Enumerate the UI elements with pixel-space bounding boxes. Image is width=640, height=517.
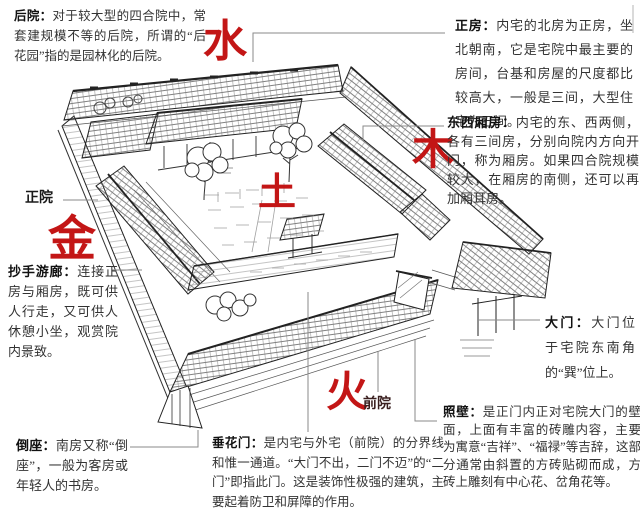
- annotation-back-yard: 后院：对于较大型的四合院中，常套建规模不等的后院，所谓的“后花园”指的是园林化的…: [14, 6, 206, 66]
- annotation-side-wings: 东西厢房：内宅的东、西两侧，各有三间房，分别向院内方向开门，称为厢房。如果四合院…: [447, 113, 639, 208]
- annotation-term: 东西厢房：: [447, 115, 516, 130]
- annotation-term: 正房：: [455, 18, 496, 33]
- annotation-term: 后院：: [14, 9, 52, 23]
- annotation-south-rooms: 倒座：南房又称“倒座”，一般为客房或年轻人的书房。: [16, 436, 128, 496]
- label-front-courtyard: 前院: [363, 398, 391, 412]
- annotation-term: 抄手游廊：: [8, 264, 77, 279]
- annotation-festoon-gate: 垂花门：是内宅与外宅（前院）的分界线和惟一通道。“大门不出，二门不迈”的“二门”…: [212, 434, 444, 512]
- element-metal-character: 金: [48, 216, 96, 264]
- label-main-courtyard: 正院: [25, 192, 53, 206]
- gate-house: [428, 242, 551, 356]
- annotation-term: 垂花门：: [212, 436, 264, 450]
- element-fire-character: 火: [326, 372, 368, 414]
- leader-daozuo: [130, 430, 198, 447]
- annotation-corridor: 抄手游廊：连接正房与厢房，既可供人行走，又可供人休憩小坐，观赏院内景致。: [8, 262, 118, 362]
- annotation-main-gate: 大门：大门位于宅院东南角的“巽”位上。: [545, 310, 635, 385]
- annotation-term: 照壁：: [443, 405, 483, 419]
- northwest-corner-roof: [82, 114, 158, 158]
- element-earth-character: 土: [258, 174, 296, 212]
- front-yard-bushes: [206, 292, 256, 321]
- leader-zhengfang: [253, 33, 445, 62]
- annotation-term: 大门：: [545, 315, 591, 330]
- annotation-screen-wall: 照壁：是正门内正对宅院大门的壁面，上面有丰富的砖雕内容，主要为寓意“吉祥”、“福…: [443, 404, 640, 492]
- siheyuan-diagram-page: 水 木 金 土 火 正院 前院 后院：对于较大型的四合院中，常套建规模不等的后院…: [0, 0, 640, 517]
- courtyard-tree-west: [185, 143, 228, 200]
- annotation-term: 倒座：: [16, 438, 56, 453]
- leader-zhaobi: [415, 340, 437, 421]
- element-water-character: 水: [203, 20, 247, 64]
